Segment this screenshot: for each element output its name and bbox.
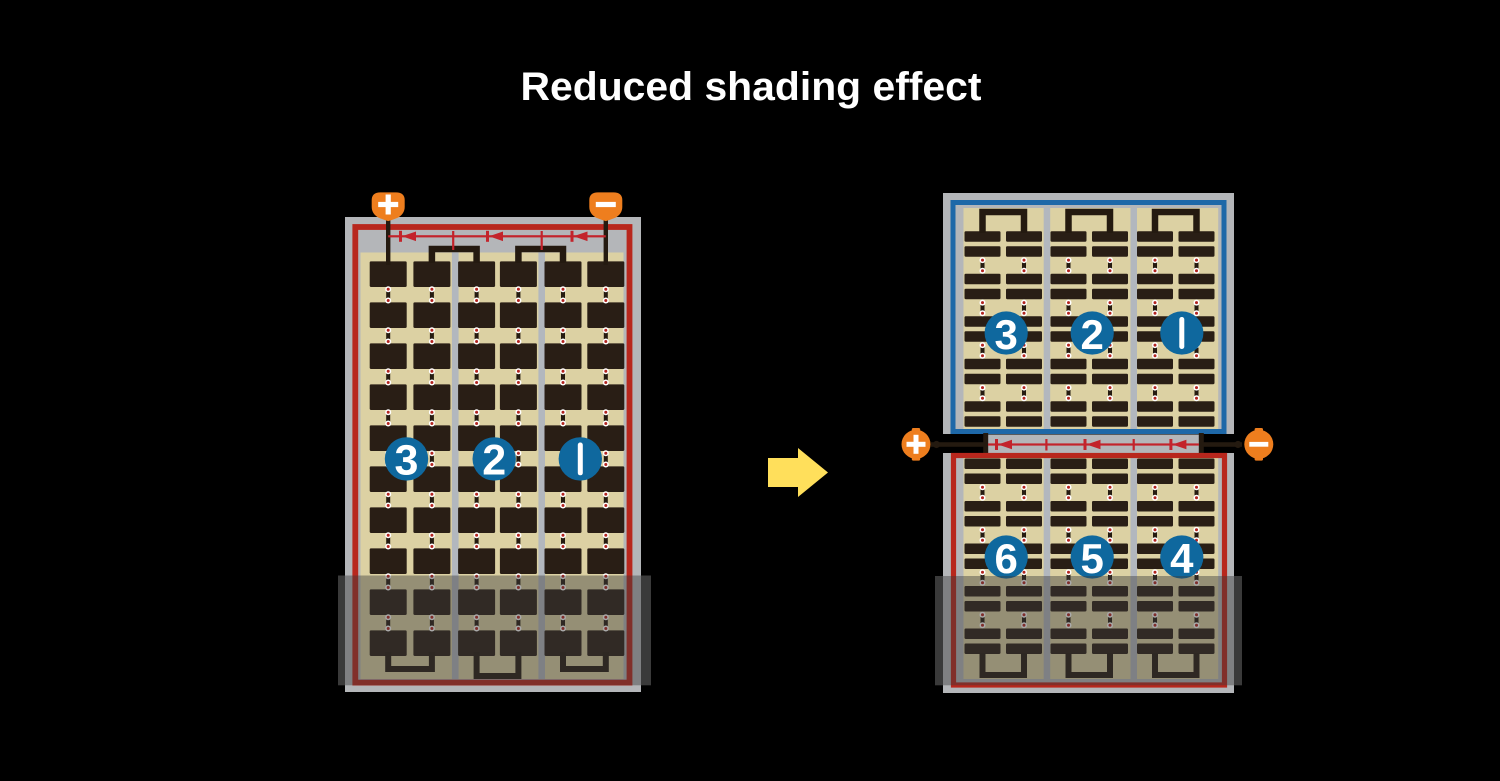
svg-text:5: 5 [1081,535,1104,582]
svg-text:2: 2 [482,436,506,484]
svg-text:2: 2 [1081,311,1104,358]
svg-text:3: 3 [395,436,419,484]
svg-text:6: 6 [995,535,1018,582]
svg-text:4: 4 [1170,535,1194,582]
svg-text:Reduced shading effect: Reduced shading effect [521,65,982,109]
svg-text:3: 3 [995,311,1018,358]
